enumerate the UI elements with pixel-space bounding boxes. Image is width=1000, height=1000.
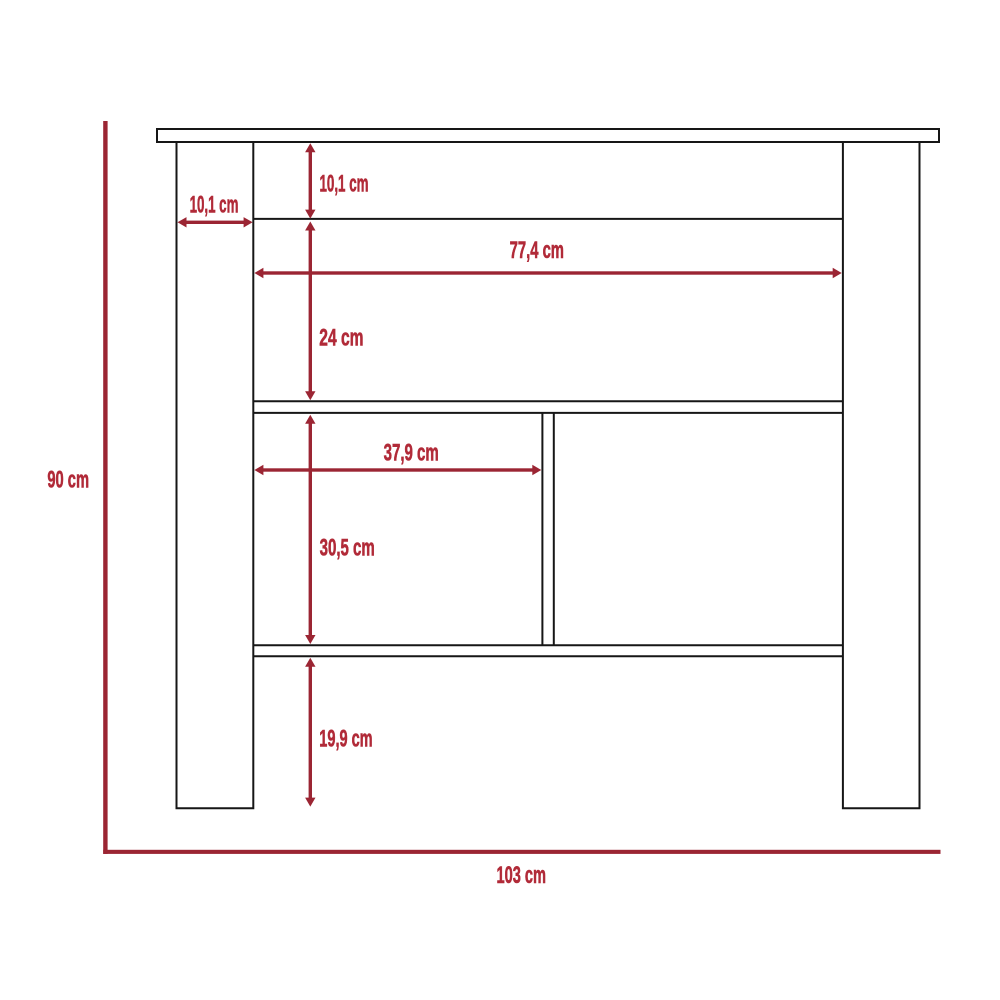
svg-text:37,9 cm: 37,9 cm (384, 440, 439, 467)
svg-text:90 cm: 90 cm (47, 466, 89, 493)
svg-text:10,1 cm: 10,1 cm (190, 191, 239, 218)
svg-text:30,5 cm: 30,5 cm (320, 535, 375, 562)
svg-text:19,9 cm: 19,9 cm (319, 726, 372, 753)
svg-text:10,1 cm: 10,1 cm (320, 171, 369, 198)
svg-text:77,4 cm: 77,4 cm (510, 237, 564, 264)
svg-text:103 cm: 103 cm (497, 862, 547, 889)
svg-text:24 cm: 24 cm (319, 325, 363, 352)
